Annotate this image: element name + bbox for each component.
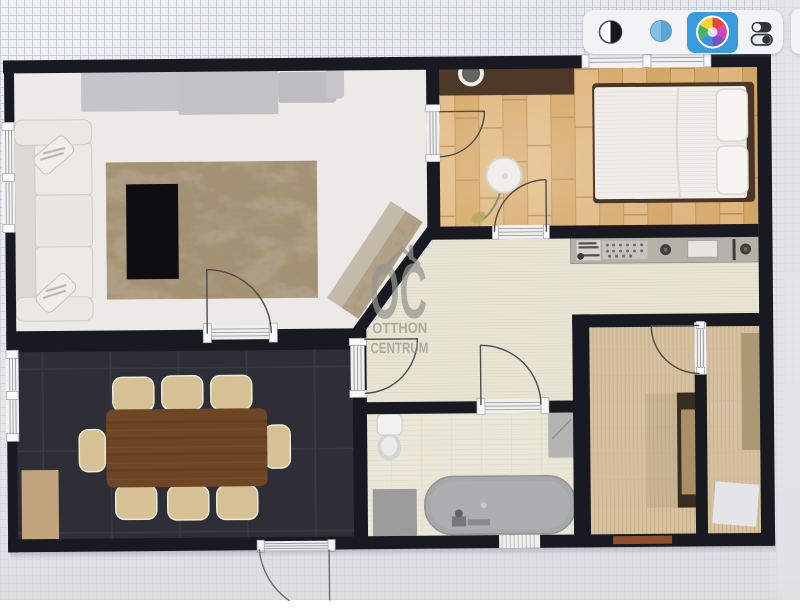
svg-text:OTTHON: OTTHON [372,320,427,337]
svg-text:CENTRUM: CENTRUM [370,340,428,358]
